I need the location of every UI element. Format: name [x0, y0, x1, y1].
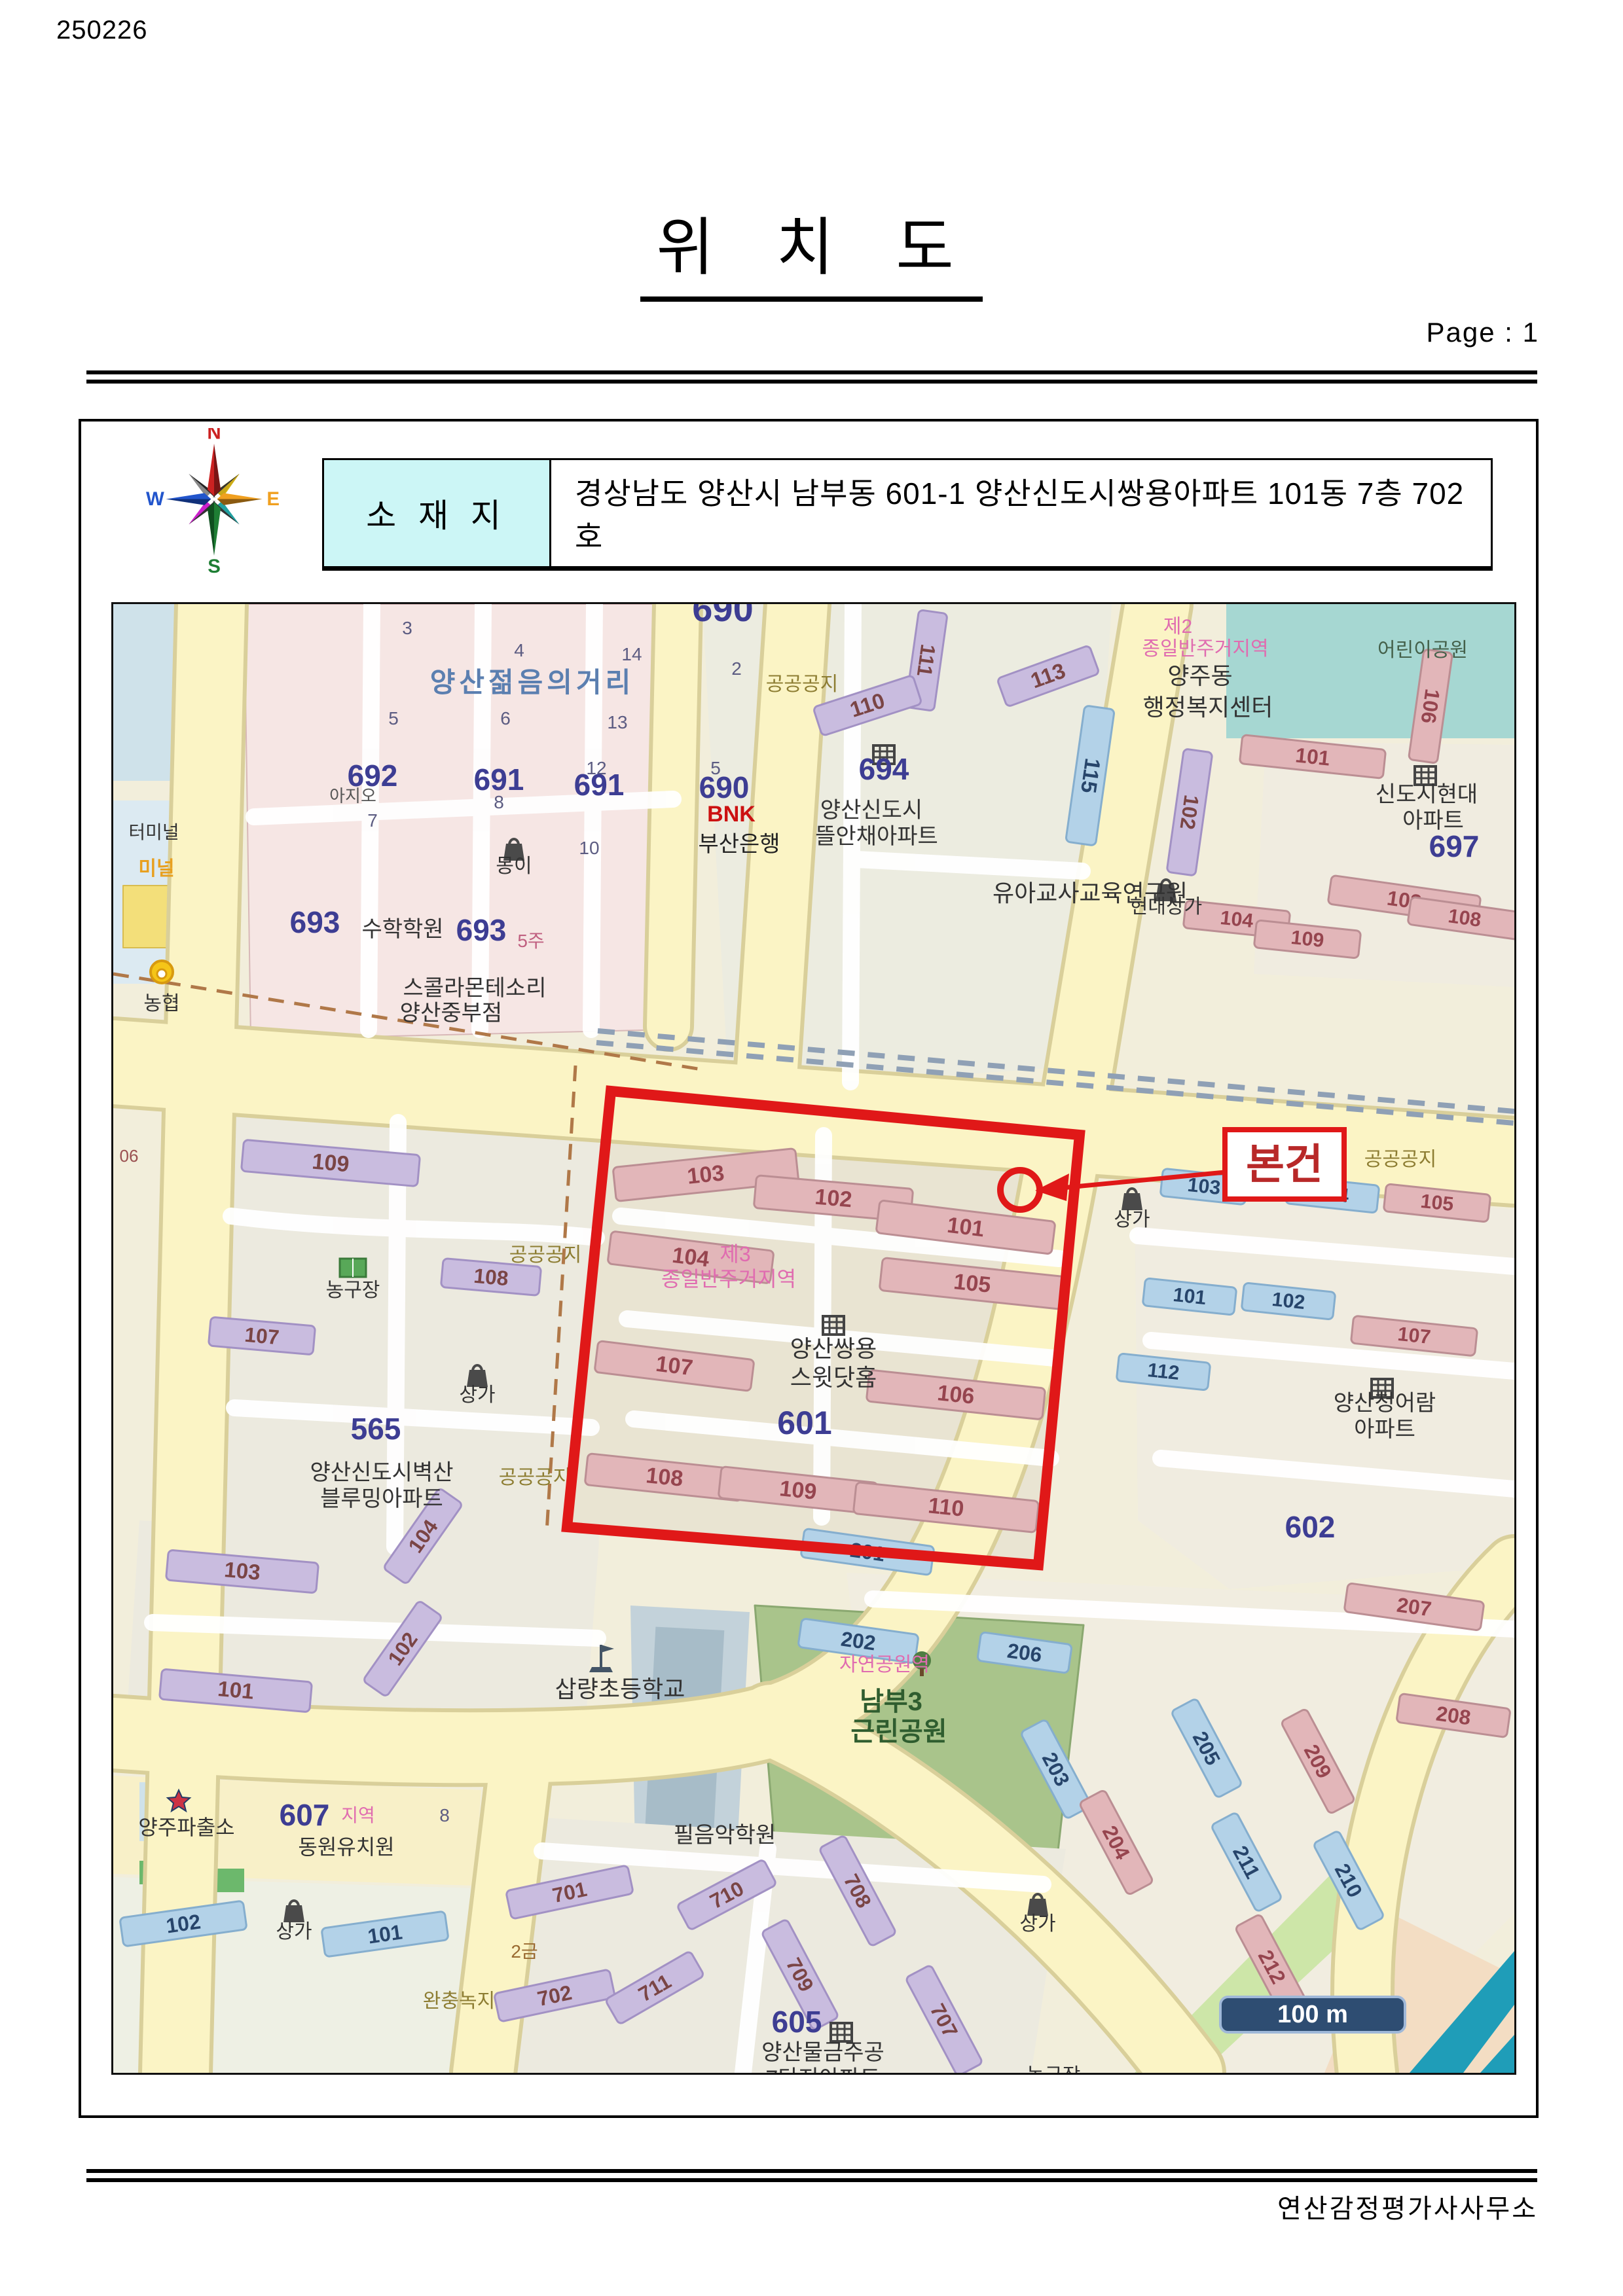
map-building-number: 104	[1219, 907, 1254, 932]
map-label: 10	[579, 838, 599, 858]
map-label: 13	[607, 712, 627, 732]
map-building-number: 109	[311, 1149, 350, 1177]
map-label: 양주파출소	[138, 1816, 234, 1839]
map-label: 697	[1429, 829, 1480, 863]
map-building-number: 101	[1172, 1284, 1207, 1309]
map-label: 691	[474, 762, 524, 797]
compass-w-label: W	[146, 488, 164, 510]
map-label: 스윗닷홈	[790, 1364, 877, 1391]
map-label: 06	[120, 1146, 139, 1166]
page-title: 위 치 도	[640, 196, 982, 302]
scale-bar: 100 m	[1220, 1997, 1405, 2032]
map-building-number: 109	[778, 1476, 818, 1505]
map-label: 양산신도시	[820, 798, 922, 823]
map-building-number: 103	[223, 1558, 261, 1585]
map-label: 농구장	[1027, 2065, 1081, 2073]
map-label: 양산청어람	[1334, 1391, 1436, 1416]
map-label: 현대상가	[1130, 896, 1202, 918]
map-label: 690	[699, 770, 750, 804]
map-label: 565	[351, 1412, 401, 1446]
compass-s-label: S	[208, 556, 221, 577]
nh-icon	[151, 961, 173, 983]
map-building-number: 107	[244, 1323, 280, 1349]
map-building-number: 202	[839, 1626, 877, 1655]
map-label: 행정복지센터	[1143, 694, 1273, 721]
map-label: 자연공원역	[839, 1654, 930, 1676]
map-label: 3	[402, 618, 412, 638]
map-label: 터미널	[128, 822, 179, 842]
map-label: 양주동	[1167, 662, 1232, 689]
map-label: 상가	[276, 1921, 312, 1943]
double-rule-bottom	[86, 2169, 1537, 2182]
map-label: 완충녹지	[423, 1990, 495, 2012]
map-building-number: 102	[1271, 1289, 1306, 1314]
map-label: 부산은행	[698, 832, 780, 857]
map-label: 스콜라몬테소리	[403, 976, 547, 1001]
map-label: 뜰안채아파트	[815, 824, 938, 849]
map-label: 필음악학원	[674, 1823, 776, 1848]
map-label: 동원유치원	[298, 1835, 394, 1859]
map-label: 수학학원	[361, 917, 443, 942]
map-label: 690	[692, 604, 753, 629]
map-label: 공공공지	[1364, 1149, 1436, 1170]
map-label: 601	[777, 1405, 831, 1441]
map-building-number: 112	[1146, 1359, 1180, 1384]
map-label: 남부3	[860, 1687, 922, 1716]
map-building-number: 102	[1175, 793, 1203, 831]
map-label: 2	[731, 658, 742, 679]
map-building-number: 101	[217, 1677, 255, 1704]
map-label: 제3	[720, 1242, 750, 1266]
map-label: 제2	[1163, 616, 1192, 637]
map-label: 양산물금주공	[761, 2040, 884, 2065]
map-label: 블루밍아파트	[320, 1486, 443, 1511]
map-label: 상가	[459, 1384, 495, 1406]
map-building-number: 107	[655, 1352, 695, 1381]
map-building-number: 105	[1419, 1191, 1455, 1215]
map-building-number: 102	[814, 1185, 853, 1213]
map-label: 5	[388, 708, 399, 728]
map-label: 농협	[143, 993, 179, 1014]
map-building-number: 103	[1186, 1174, 1222, 1199]
location-label-cell: 소 재 지	[324, 460, 551, 566]
map-label: 농구장	[326, 1280, 380, 1301]
map-label: 아파트	[1354, 1417, 1415, 1442]
subject-label: 본건	[1246, 1141, 1323, 1188]
map-building-number: 109	[1290, 927, 1325, 952]
map-building-number: 105	[953, 1269, 992, 1298]
map-building-number: 106	[1416, 687, 1444, 725]
map-building-number: 102	[164, 1909, 202, 1937]
map-building-number: 101	[946, 1213, 986, 1242]
map-building-number: 106	[936, 1380, 976, 1409]
map-building-number: 208	[1434, 1701, 1472, 1729]
compass-e-label: E	[266, 488, 280, 510]
map-label: 공공공지	[509, 1244, 581, 1266]
map-label: 691	[574, 768, 625, 802]
map-label: 양산중부점	[400, 1001, 502, 1026]
map-label: 상가	[1019, 1913, 1055, 1935]
map-label: 양산쌍용	[790, 1335, 877, 1362]
map-label: 693	[290, 905, 340, 939]
map-building-number: 107	[1396, 1323, 1432, 1348]
map-building-number: 206	[1006, 1638, 1043, 1666]
map-building-number: 108	[1447, 905, 1483, 931]
map-label: 6	[500, 708, 511, 728]
map-label: BNK	[707, 802, 756, 827]
map-building-number: 108	[645, 1463, 684, 1492]
map-label: 602	[1285, 1510, 1336, 1544]
map-building-number: 108	[473, 1264, 509, 1290]
map-label: 8	[439, 1805, 450, 1825]
map-label: 삽량초등학교	[555, 1676, 685, 1702]
map-label: 상가	[1114, 1209, 1150, 1230]
title-row: 위 치 도	[0, 196, 1623, 302]
document-number: 250226	[56, 16, 147, 45]
map-label: 694	[859, 752, 909, 786]
map-label: 7단지아파트	[765, 2066, 880, 2073]
map-label: 공공공지	[499, 1467, 571, 1488]
map-label: 지역	[341, 1805, 375, 1825]
scale-bar-label: 100 m	[1277, 2001, 1348, 2028]
compass-n-label: N	[207, 428, 221, 444]
map-label: 692	[348, 759, 398, 793]
map-building-number: 101	[366, 1920, 403, 1948]
map-label: 양산젊음의거리	[430, 667, 634, 698]
map-label: 7	[367, 810, 378, 831]
map-building-number: 111	[913, 643, 941, 678]
double-rule-top	[86, 370, 1537, 384]
map-canvas: 1031021011041051071061081091101111101131…	[113, 604, 1514, 2073]
map-label: 몽이	[496, 855, 532, 877]
page-number: Page : 1	[1427, 317, 1539, 348]
map-label: 693	[456, 913, 507, 947]
map-label: 신도시현대	[1376, 782, 1478, 807]
map-label: 양산신도시벽산	[310, 1460, 454, 1485]
map-label: 14	[621, 644, 642, 664]
footer-office-name: 연산감정평가사사무소	[1277, 2187, 1538, 2225]
map-label: 미널	[138, 858, 174, 880]
location-map: 1031021011041051071061081091101111101131…	[111, 602, 1516, 2075]
map-label: 어린이공원	[1377, 639, 1468, 661]
map-label: 종일반주거지역	[1142, 638, 1268, 660]
map-building-number: 101	[1294, 743, 1331, 770]
map-building-number: 207	[1395, 1592, 1432, 1621]
map-label: 공공공지	[766, 673, 838, 695]
map-label: 종일반주거지역	[661, 1267, 796, 1291]
location-value-cell: 경상남도 양산시 남부동 601-1 양산신도시쌍용아파트 101동 7층 70…	[551, 460, 1491, 566]
compass-rose-icon: N S E W	[132, 428, 296, 579]
map-building-number: 110	[927, 1493, 966, 1522]
map-building-number: 115	[1076, 757, 1104, 795]
map-label: 근린공원	[850, 1717, 947, 1746]
map-label: 607	[280, 1798, 330, 1832]
content-frame: N S E W 소 재 지 경상남도 양산시 남부동 601-1 양산신도시쌍용…	[79, 419, 1539, 2118]
map-label: 2금	[511, 1941, 538, 1962]
court-icon	[340, 1259, 366, 1277]
compass-rays	[166, 444, 262, 556]
map-label: 4	[514, 640, 524, 660]
map-building-number: 103	[686, 1160, 725, 1189]
map-label: 5주	[517, 931, 544, 951]
map-label: 605	[772, 2005, 822, 2039]
location-table: 소 재 지 경상남도 양산시 남부동 601-1 양산신도시쌍용아파트 101동…	[322, 458, 1493, 571]
